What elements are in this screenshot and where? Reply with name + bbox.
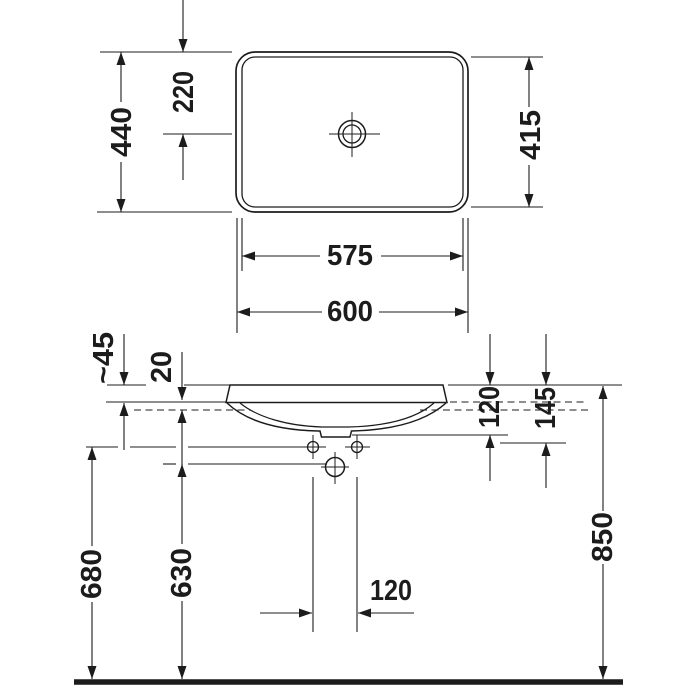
dim-rim-to-lowest-label: 145 <box>530 387 562 429</box>
dim-fixing-spacing-label: 120 <box>370 575 412 607</box>
dim-outer-width-label: 600 <box>327 296 373 328</box>
dimension-labels: 440 220 415 575 600 ~45 20 120 145 680 6… <box>76 71 619 607</box>
drawing-svg: 440 220 415 575 600 ~45 20 120 145 680 6… <box>0 0 700 700</box>
dim-inner-depth-label: 415 <box>515 110 547 160</box>
dim-floor-to-drain-label: 630 <box>166 548 198 598</box>
bowl-outer-profile <box>227 403 446 437</box>
tap-hole <box>329 112 380 157</box>
dim-counter-thickness-label: 20 <box>146 351 178 383</box>
dim-inner-width-label: 575 <box>327 240 373 272</box>
basin-rim-profile <box>226 385 447 403</box>
top-view <box>97 0 543 333</box>
top-view-dimension-lines <box>97 0 543 333</box>
dim-rim-to-underside-label: 120 <box>474 386 506 428</box>
dim-floor-to-fixing-label: 680 <box>76 549 108 599</box>
front-view <box>74 334 623 682</box>
dim-tap-offset-label: 220 <box>168 71 200 113</box>
dim-floor-to-rim-label: 850 <box>587 512 619 562</box>
washbasin-dimension-drawing: 440 220 415 575 600 ~45 20 120 145 680 6… <box>0 0 700 700</box>
dim-rim-above-counter-label: ~45 <box>88 332 120 384</box>
dim-outer-depth-label: 440 <box>106 107 138 157</box>
drain-hole <box>321 452 349 484</box>
